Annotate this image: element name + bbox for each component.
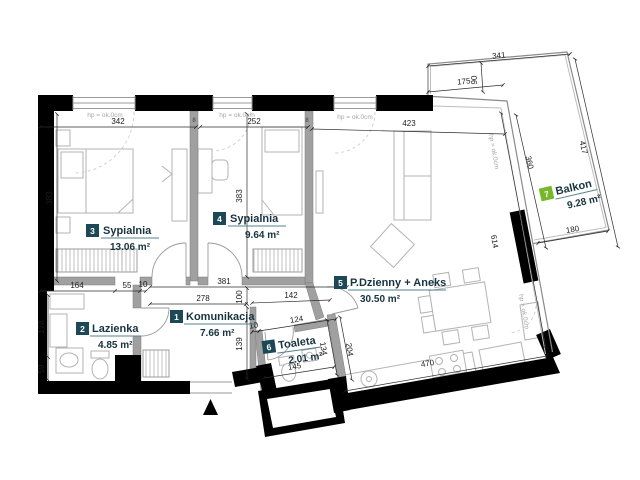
dining-table <box>429 282 491 331</box>
room-name: Lazienka <box>92 323 139 335</box>
furniture-bedroom-4 <box>198 112 302 272</box>
room-area: 13.06 m² <box>110 242 151 253</box>
svg-text:2: 2 <box>80 324 85 334</box>
dim-142: 142 <box>284 291 298 300</box>
svg-text:5: 5 <box>338 278 343 288</box>
room-name: Sypialnia <box>230 213 279 225</box>
duct <box>115 355 141 383</box>
room-label-sypialnia-4: 4 Sypialnia 9.64 m² <box>213 212 286 241</box>
dim-417: 417 <box>578 140 590 156</box>
dim-10-a: 10 <box>139 280 148 289</box>
room-label-balkon: 7 Balkon 9.28 m² <box>539 175 603 217</box>
dim-423: 423 <box>402 119 416 128</box>
chair <box>212 160 228 180</box>
dim-55: 55 <box>123 281 132 290</box>
room-area: 9.64 m² <box>245 230 280 241</box>
room-label-komunikacja: 1 Komunikacja 7.66 m² <box>170 310 258 339</box>
room-area: 2.01 m² <box>288 351 324 367</box>
dim-178: 178 <box>37 320 46 334</box>
dim-204: 204 <box>344 342 355 357</box>
dim-614: 614 <box>489 234 500 249</box>
dim-164: 164 <box>70 281 84 290</box>
door-bedroom-3 <box>152 243 186 277</box>
svg-text:4: 4 <box>217 214 222 224</box>
toilet <box>92 359 108 379</box>
dim-383-b: 383 <box>235 189 244 203</box>
dim-100: 100 <box>235 290 244 304</box>
hp-label: hp = ok.0cm <box>87 112 123 119</box>
hp-label: hp = ok.0cm <box>337 114 373 121</box>
dim-278: 278 <box>196 294 210 303</box>
desk <box>198 149 212 193</box>
hp-label: hp = ok.0cm <box>219 112 255 119</box>
dim-360: 360 <box>524 155 536 171</box>
entrance <box>190 382 232 415</box>
dim-59: 59 <box>37 364 46 373</box>
room-name: Komunikacja <box>186 311 255 323</box>
room-name: Sypialnia <box>103 225 152 237</box>
svg-text:3: 3 <box>90 226 95 236</box>
dim-341: 341 <box>492 50 507 60</box>
door-living-room <box>327 287 358 314</box>
coffee-table <box>371 224 415 268</box>
svg-text:1: 1 <box>174 312 179 322</box>
room-name: P.Dzienny + Aneks <box>350 277 446 289</box>
window-bedroom-3 <box>73 95 135 111</box>
room-area: 7.66 m² <box>200 328 235 339</box>
room-label-lazienka: 2 Lazienka 4.85 m² <box>76 322 141 351</box>
door-bedroom-4 <box>208 243 242 277</box>
wardrobe <box>253 249 302 272</box>
door-bathroom <box>141 308 169 336</box>
hp-label: hp = ok.0cm <box>487 134 500 170</box>
room-area: 4.85 m² <box>98 340 133 351</box>
dim-383-a: 383 <box>45 191 54 205</box>
tv <box>316 171 323 213</box>
dim-381: 381 <box>217 277 231 286</box>
dim-180: 180 <box>565 224 580 235</box>
dim-90: 90 <box>470 75 479 84</box>
window-bedroom-4 <box>213 95 252 111</box>
toilet-tank <box>91 351 109 358</box>
hall-wardrobe <box>143 350 169 377</box>
floor-plan-drawing: 342 252 423 341 90 175 417 360 180 614 3… <box>0 0 640 480</box>
entrance-arrow <box>203 399 218 415</box>
room-area: 30.50 m² <box>360 294 401 305</box>
window-living-room <box>334 95 376 111</box>
dim-139: 139 <box>235 337 244 351</box>
dim-175: 175 <box>457 76 472 86</box>
floor-plan-page: 342 252 423 341 90 175 417 360 180 614 3… <box>0 0 640 480</box>
